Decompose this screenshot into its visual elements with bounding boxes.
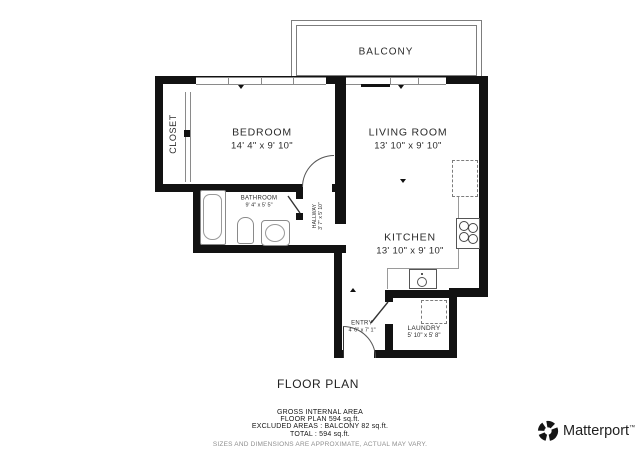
bathroom-label: BATHROOM 9' 4" x 5' 5" [241, 196, 278, 209]
bathroom-door-post-top [296, 192, 303, 199]
stove-burner [468, 223, 478, 233]
total-area: TOTAL : 594 sq.ft. [213, 431, 427, 438]
wall-laundry-right [449, 290, 457, 358]
page-title: FLOOR PLAN [277, 377, 359, 391]
kitchen-dims: 13' 10" x 9' 10" [376, 246, 443, 257]
wall-entry-left [334, 253, 342, 358]
wall-right [479, 76, 488, 297]
stove-burner [468, 234, 478, 244]
laundry-name: LAUNDRY [407, 325, 440, 332]
balcony-label: BALCONY [359, 47, 414, 58]
bathtub-basin [203, 194, 222, 240]
bedroom-label: BEDROOM 14' 4" x 9' 10" [231, 127, 293, 152]
area-summary: GROSS INTERNAL AREA FLOOR PLAN 594 sq.ft… [213, 409, 427, 448]
hallway-label: HALLWAY 3' 7" x 5' 10" [312, 202, 324, 229]
bathroom-name: BATHROOM [241, 196, 278, 202]
kitchen-sink-drain [417, 277, 427, 287]
entry-dims: 4' 6" x 7' 1" [348, 328, 375, 334]
kitchen-label: KITCHEN 13' 10" x 9' 10" [376, 232, 443, 257]
refrigerator-dashed [452, 160, 478, 197]
closet-label: CLOSET [168, 114, 178, 154]
living-room-dims: 13' 10" x 9' 10" [369, 141, 448, 152]
matterport-wordmark: Matterport™ [563, 423, 635, 439]
bedroom-name: BEDROOM [231, 127, 293, 139]
closet-sliding-door [185, 92, 191, 182]
bedroom-door-arc [302, 155, 334, 187]
entry-name: ENTRY [348, 321, 375, 327]
excluded-areas: EXCLUDED AREAS : BALCONY 82 sq.ft. [213, 423, 427, 430]
wall-bathroom-bottom [193, 245, 346, 253]
toilet-bowl [265, 224, 285, 242]
bathroom-dims: 9' 4" x 5' 5" [241, 203, 278, 209]
entry-label: ENTRY 4' 6" x 7' 1" [348, 321, 375, 334]
living-room-label: LIVING ROOM 13' 10" x 9' 10" [369, 127, 448, 152]
wall-entry-laundry-bottom [374, 350, 457, 358]
window-mullion [293, 78, 294, 84]
balcony-sliding-door-leaf [361, 84, 390, 87]
laundry-label: LAUNDRY 5' 10" x 5' 8" [407, 325, 440, 339]
window-mullion [261, 78, 262, 84]
floor-plan-canvas: BALCONY [0, 0, 640, 452]
window-mullion [390, 78, 391, 84]
matterport-logo: Matterport™ [537, 420, 635, 442]
wall-left [155, 76, 163, 192]
window-marker [398, 85, 404, 89]
wall-laundry-left-lower [385, 324, 393, 350]
opening-marker [350, 288, 356, 292]
floor-plan-area: FLOOR PLAN 594 sq.ft. [213, 416, 427, 423]
window-mullion [418, 78, 419, 84]
hallway-dims: 3' 7" x 5' 10" [318, 202, 324, 229]
kitchen-sink [409, 269, 437, 289]
counter-edge-left [387, 268, 388, 289]
pedestal-sink [237, 217, 254, 244]
matterport-icon [537, 420, 559, 442]
stove [456, 218, 480, 249]
kitchen-name: KITCHEN [376, 232, 443, 244]
bedroom-window [196, 77, 326, 85]
wall-bedroom-bottom-left [155, 184, 303, 192]
trademark-symbol: ™ [629, 425, 635, 431]
disclaimer: SIZES AND DIMENSIONS ARE APPROXIMATE, AC… [213, 441, 427, 448]
wall-laundry-top [385, 290, 457, 298]
laundry-dims: 5' 10" x 5' 8" [407, 333, 440, 339]
window-marker [238, 85, 244, 89]
bathtub [200, 190, 226, 245]
bathroom-door-post-bottom [296, 213, 303, 220]
washer-dashed [421, 300, 447, 324]
bedroom-dims: 14' 4" x 9' 10" [231, 141, 293, 152]
toilet [261, 220, 290, 246]
wall-bedroom-living-divider [335, 84, 346, 224]
kitchen-sink-faucet [421, 273, 423, 275]
opening-marker [400, 179, 406, 183]
living-room-name: LIVING ROOM [369, 127, 448, 139]
window-mullion [228, 78, 229, 84]
closet-door-handle [184, 130, 190, 137]
gross-internal-area-title: GROSS INTERNAL AREA [213, 409, 427, 416]
